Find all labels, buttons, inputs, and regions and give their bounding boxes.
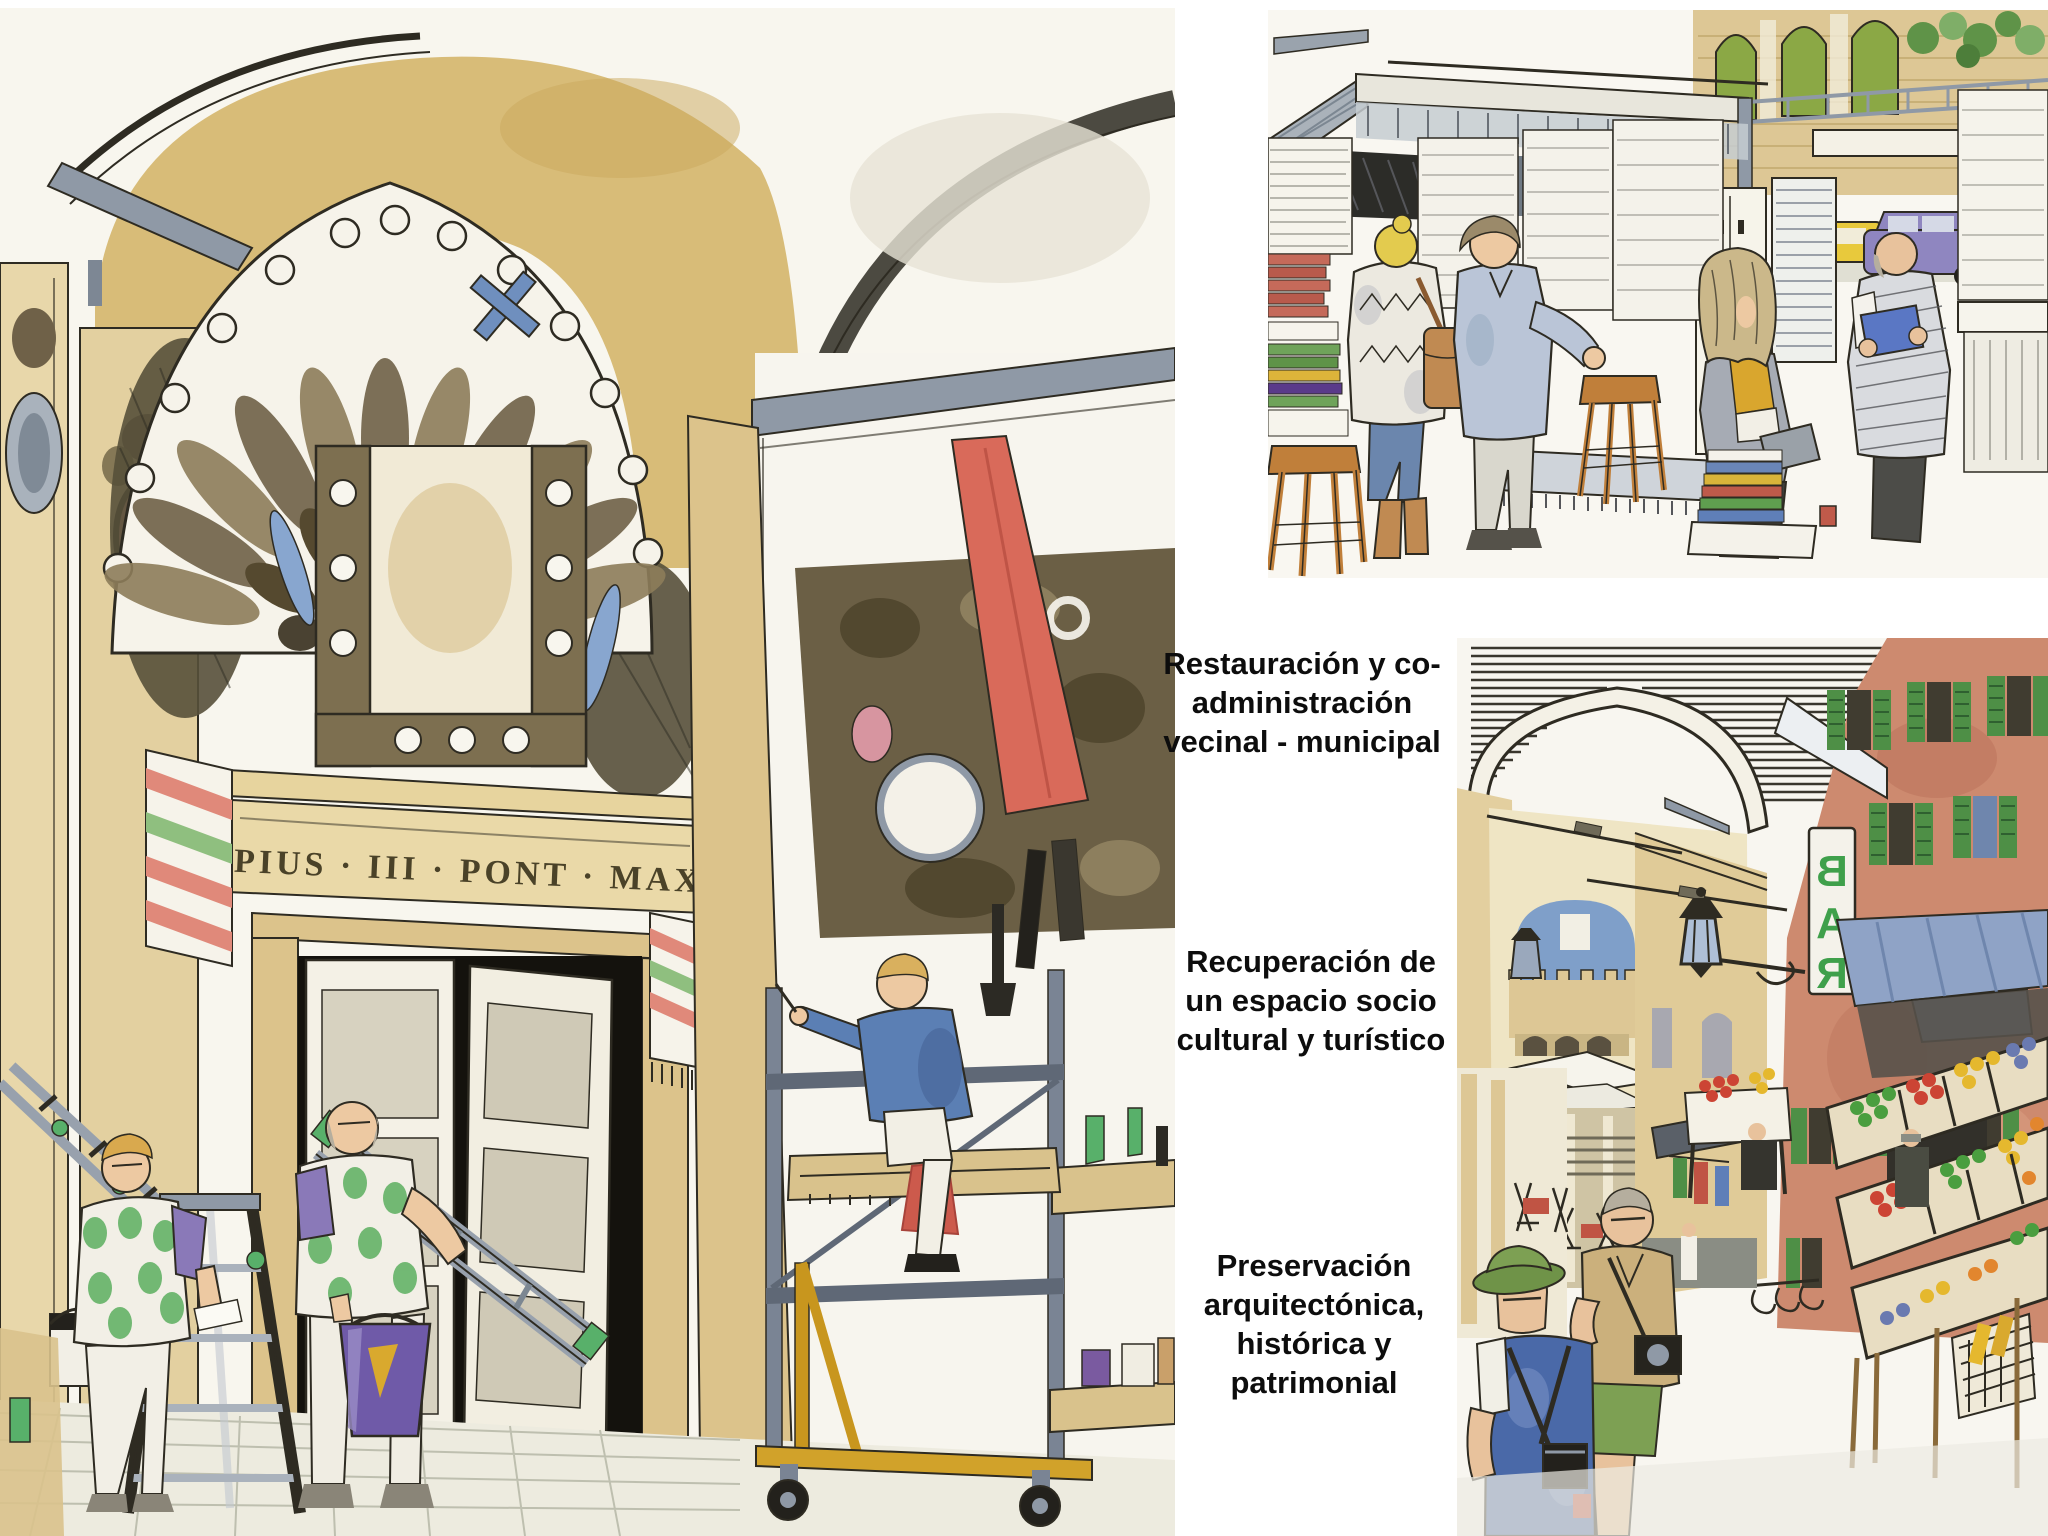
caption-recovery: Recuperación de un espacio socio cultura…	[1130, 942, 1492, 1059]
street-market-illustration: B A R	[1457, 638, 2048, 1536]
crenellated-tower	[1509, 970, 1637, 1056]
caption-line: administración	[1122, 683, 1482, 722]
caption-line: Preservación	[1136, 1246, 1492, 1285]
bar-sign-letter-r: R	[1816, 949, 1848, 998]
lantern-glass	[1681, 918, 1721, 964]
arch-niche	[1702, 1013, 1732, 1078]
red-cup	[1820, 506, 1836, 526]
table	[1688, 522, 1816, 558]
striped-decor-left	[146, 750, 232, 966]
small-figure	[1681, 1236, 1697, 1280]
caption-preservation: Preservación arquitectónica, histórica y…	[1136, 1246, 1492, 1402]
round-mirror	[880, 758, 980, 858]
portal-restoration-illustration: PIUS · III · PONT · MAX	[0, 8, 1175, 1536]
green-bottle	[10, 1398, 30, 1442]
street-lamp-small	[1511, 928, 1541, 978]
caption-line: arquitectónica,	[1136, 1285, 1492, 1324]
caption-line: Restauración y co-	[1122, 644, 1482, 683]
purple-mug	[1082, 1350, 1110, 1386]
salmon-book-stack	[1268, 254, 1330, 317]
roll-shutter	[1772, 178, 1836, 362]
boot	[1374, 500, 1402, 558]
olive-shorts	[1585, 1383, 1662, 1456]
caption-line: cultural y turístico	[1130, 1020, 1492, 1059]
caption-line: Recuperación de	[1130, 942, 1492, 981]
book-market-illustration	[1268, 10, 2048, 578]
caption-restoration: Restauración y co- administración vecina…	[1122, 644, 1482, 761]
caption-line: vecinal - municipal	[1122, 722, 1482, 761]
strapwork-frame	[316, 446, 586, 766]
caption-line: un espacio socio	[1130, 981, 1492, 1020]
caption-line: patrimonial	[1136, 1363, 1492, 1402]
caption-line: histórica y	[1136, 1324, 1492, 1363]
bar-sign-letter-b: B	[1816, 847, 1848, 896]
colored-book-stack	[1268, 344, 1342, 407]
boot	[1404, 498, 1428, 554]
slide-canvas: PIUS · III · PONT · MAX	[0, 0, 2048, 1536]
red-tablecloth	[1523, 1198, 1549, 1214]
